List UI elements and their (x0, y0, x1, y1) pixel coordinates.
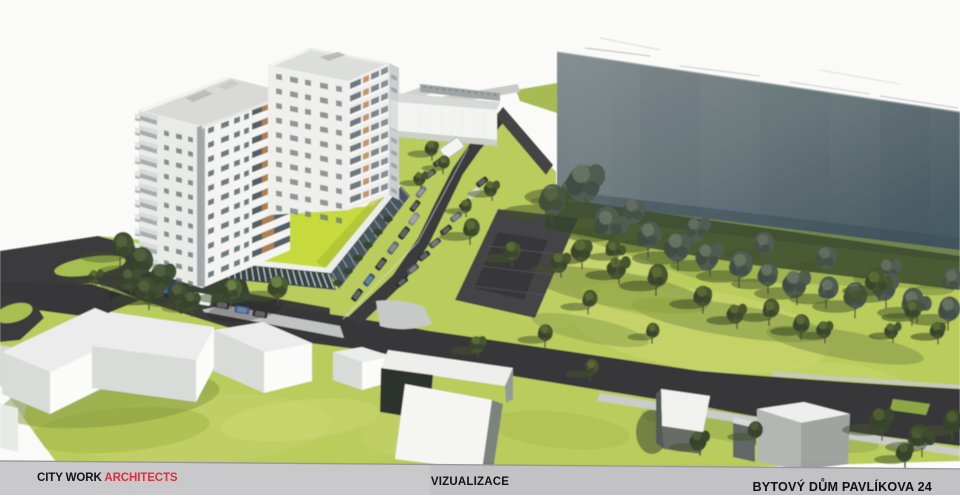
svg-text:VIZUALIZACE: VIZUALIZACE (431, 476, 509, 488)
svg-text:CITY WORK ARCHITECTS: CITY WORK ARCHITECTS (37, 472, 178, 484)
svg-text:BYTOVÝ DŮM PAVLÍKOVA 24: BYTOVÝ DŮM PAVLÍKOVA 24 (752, 478, 932, 494)
